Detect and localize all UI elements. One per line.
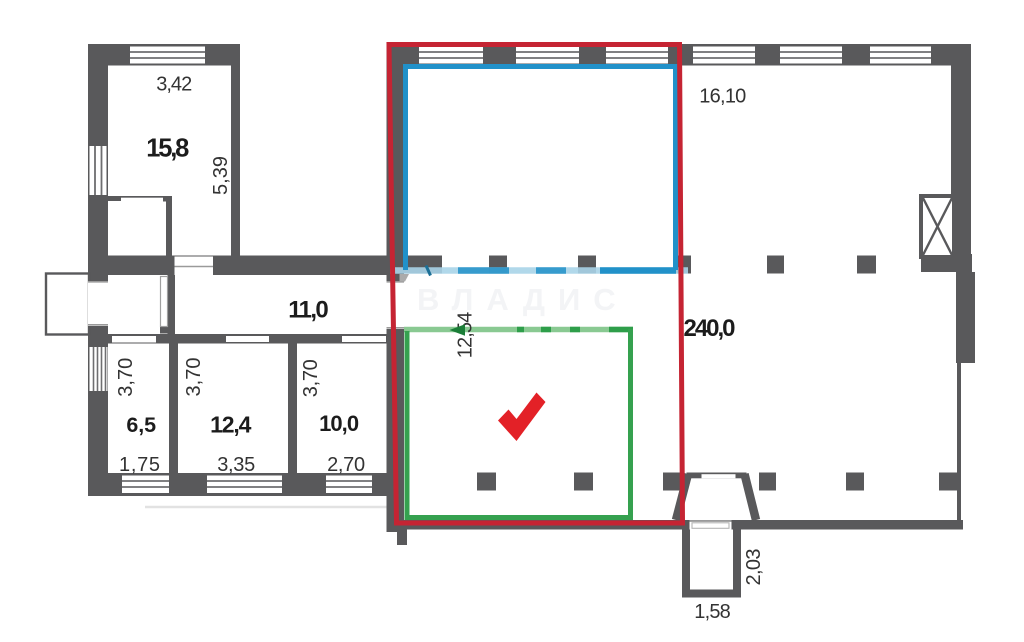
svg-text:2,70: 2,70	[327, 454, 365, 476]
svg-text:240,0: 240,0	[684, 315, 736, 342]
svg-text:3,70: 3,70	[300, 359, 322, 397]
svg-text:10,0: 10,0	[319, 411, 359, 436]
svg-text:16,10: 16,10	[699, 86, 746, 108]
svg-text:5,39: 5,39	[210, 156, 232, 195]
svg-text:3,70: 3,70	[183, 358, 205, 397]
svg-text:3,70: 3,70	[115, 358, 137, 397]
svg-text:15,8: 15,8	[146, 135, 189, 163]
svg-text:1,58: 1,58	[694, 601, 731, 623]
svg-text:1,75: 1,75	[119, 454, 160, 476]
svg-text:12,54: 12,54	[454, 312, 476, 359]
svg-text:12,4: 12,4	[210, 412, 252, 438]
svg-text:ВЛАДИС: ВЛАДИС	[417, 282, 629, 317]
svg-text:11,0: 11,0	[288, 297, 329, 324]
svg-text:2,03: 2,03	[743, 549, 765, 586]
svg-text:3,42: 3,42	[156, 74, 192, 96]
svg-text:3,35: 3,35	[217, 454, 255, 476]
svg-text:6,5: 6,5	[126, 413, 156, 437]
